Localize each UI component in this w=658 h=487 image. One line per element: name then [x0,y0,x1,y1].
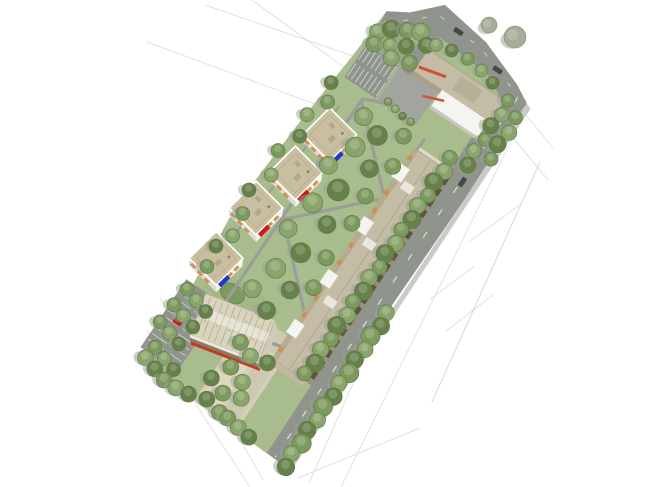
tree [478,17,497,34]
sketch-line [430,266,475,299]
sketch-line [446,295,493,331]
sketch-line [298,428,420,478]
site-plan-svg: Aerial 3D architectural site-plan render… [0,0,658,487]
tree [500,26,526,49]
sketch-line [205,5,373,63]
rendering-canvas: Aerial 3D architectural site-plan render… [0,0,658,487]
site-block [116,0,557,481]
